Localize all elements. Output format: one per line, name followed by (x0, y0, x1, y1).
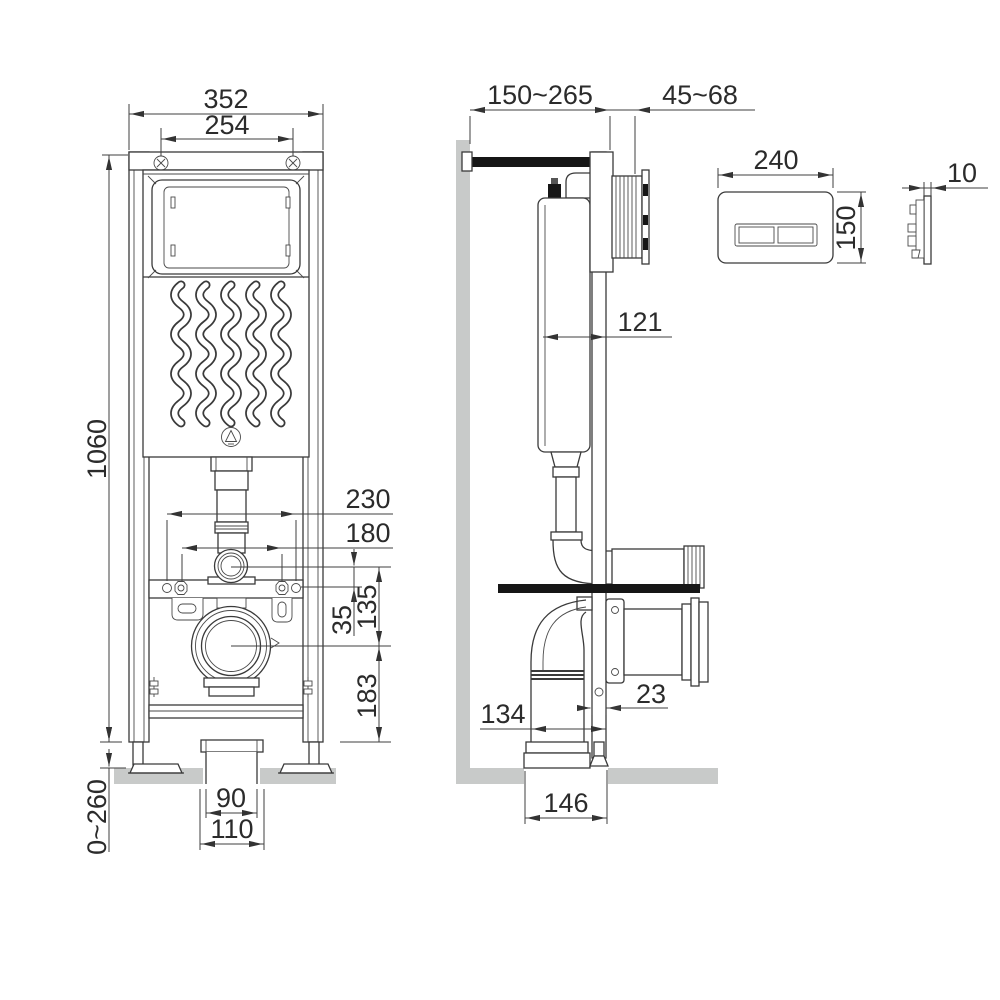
support-bar (498, 584, 700, 593)
foot-plate (130, 764, 182, 773)
dim-label: 240 (753, 145, 798, 175)
side-view (456, 140, 718, 784)
dim-outlet-pipe-inner: 90 (206, 783, 257, 818)
dim-label: 230 (345, 484, 390, 514)
window-clip (171, 245, 175, 256)
access-window (148, 176, 304, 278)
waste-elbow-side (524, 597, 592, 768)
window-clip (286, 245, 290, 256)
dim-label: 183 (352, 673, 382, 718)
fill-valve-cap (548, 184, 561, 198)
drop-pipe-flange (526, 742, 588, 753)
dim-label: 0~260 (82, 779, 112, 855)
dim-outlet-offset: 134 (480, 699, 606, 729)
dim-frame-height: 1060 (82, 155, 128, 742)
dim-plate-width: 240 (718, 145, 833, 188)
dim-floor-opening: 146 (525, 770, 607, 824)
flush-button-right (778, 227, 813, 243)
dim-label: 150~265 (487, 80, 593, 110)
waste-connector (606, 598, 708, 686)
flush-pipe-fitting (215, 550, 248, 583)
fixing-hole (163, 584, 172, 593)
flush-plate-front (718, 192, 833, 263)
adjustable-leg (133, 742, 143, 765)
cistern-side (538, 173, 592, 452)
rail-hole (595, 688, 603, 696)
dim-label: 150 (831, 205, 861, 250)
wall-section (456, 140, 470, 768)
wall-support-rod (462, 152, 592, 171)
technical-drawing-page: 352 254 1060 0~260 (0, 0, 1000, 1000)
floor-side (456, 768, 718, 784)
dim-label: 23 (636, 679, 666, 709)
dim-label: 146 (543, 788, 588, 818)
installation-diagram: 352 254 1060 0~260 (0, 0, 1000, 1000)
dim-label: 10 (947, 158, 977, 188)
dim-label: 135 (352, 584, 382, 629)
actuator-mount-plate (590, 152, 613, 272)
dim-label: 121 (617, 307, 662, 337)
dim-label-actuator-depth: 45~68 (662, 80, 738, 110)
flush-connector (612, 546, 704, 588)
fixing-crossbar (149, 550, 303, 599)
flush-pipe-front (211, 457, 252, 553)
dim-plate-thickness: 10 (902, 158, 988, 196)
waste-outlet-front (192, 607, 280, 697)
actuator-bellows (612, 170, 649, 264)
flush-button-left (739, 227, 774, 243)
adjustable-leg (309, 742, 319, 765)
dim-top-fixing-spacing: 254 (161, 110, 293, 156)
dim-plate-height: 150 (831, 192, 866, 263)
dim-frame-profile-depth: 23 (577, 679, 668, 715)
window-clip (171, 197, 175, 208)
floor-outlet-pipe (201, 740, 263, 784)
fixing-bolt (276, 582, 288, 595)
foot-plate (280, 764, 332, 773)
dim-label: 90 (216, 783, 246, 813)
dim-label: 110 (210, 814, 253, 844)
front-view (114, 152, 336, 784)
plate-profile (924, 196, 931, 264)
fixing-hole (292, 584, 301, 593)
fixing-bolt (175, 582, 187, 595)
dim-label: 180 (345, 518, 390, 548)
dim-label: 254 (204, 110, 249, 140)
window-clip (286, 197, 290, 208)
dim-fixing-spacing-inner: 180 (182, 518, 393, 581)
flush-plate-side (908, 196, 931, 264)
dim-leg-adjustment: 0~260 (82, 723, 126, 855)
dim-label: 1060 (82, 419, 112, 479)
flush-bend (566, 173, 592, 198)
dim-label: 134 (480, 699, 525, 729)
